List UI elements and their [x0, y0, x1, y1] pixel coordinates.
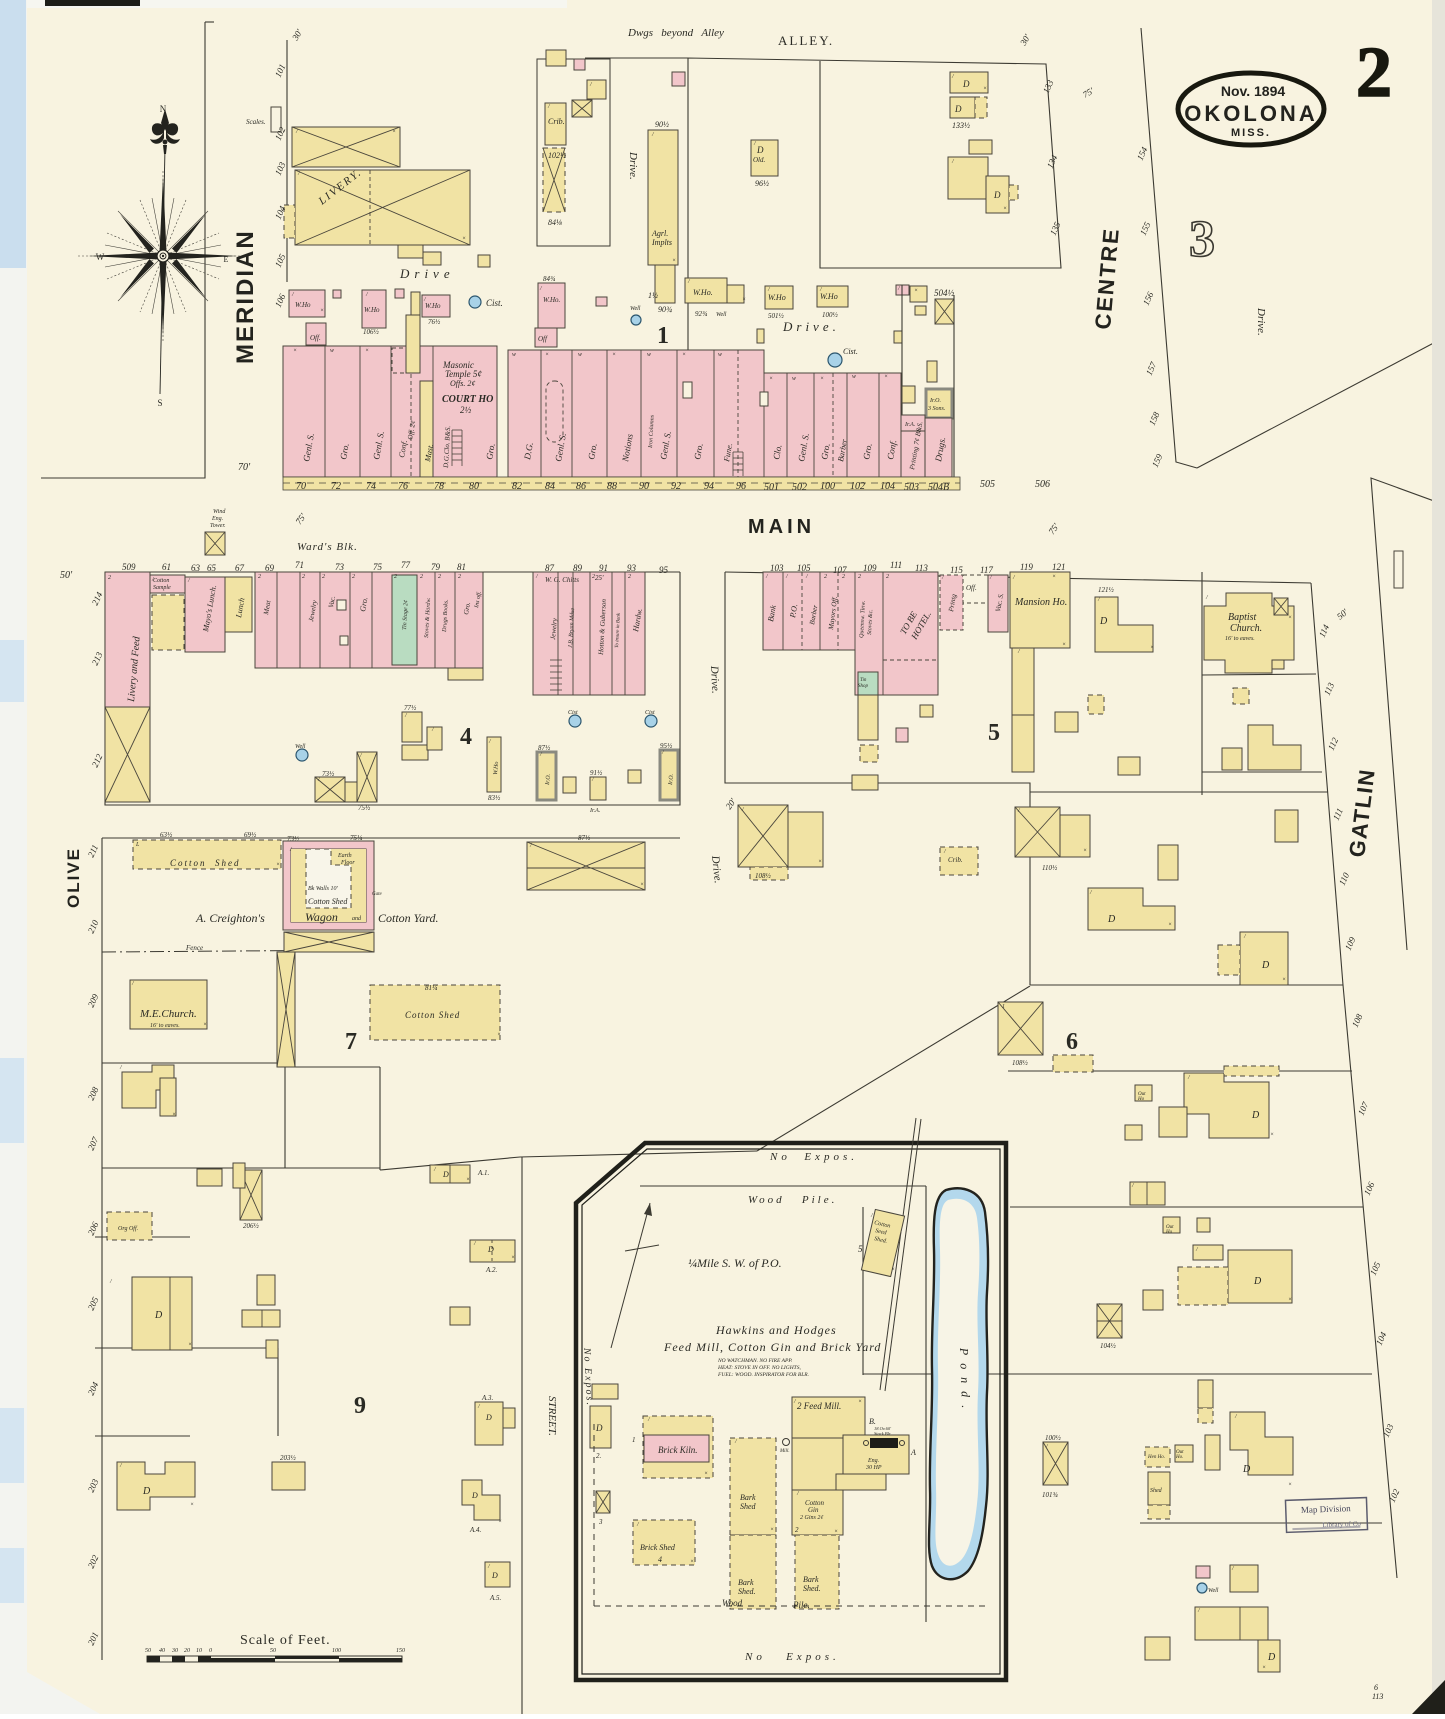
svg-text:A.2.: A.2.	[485, 1266, 498, 1274]
svg-text:75½: 75½	[358, 804, 371, 812]
svg-text:Cotton Shed: Cotton Shed	[405, 1010, 460, 1020]
svg-text:108½: 108½	[755, 872, 772, 880]
svg-text:×: ×	[293, 348, 297, 354]
svg-text:Cotton Shed: Cotton Shed	[308, 897, 348, 906]
svg-text:501: 501	[764, 482, 779, 493]
svg-text:115: 115	[950, 565, 963, 575]
svg-text:Bark: Bark	[803, 1575, 819, 1584]
svg-text:Offs. 2¢: Offs. 2¢	[450, 379, 475, 388]
svg-text:76½: 76½	[428, 318, 441, 326]
svg-text:A. Creighton's: A. Creighton's	[195, 911, 265, 925]
svg-text:×: ×	[769, 376, 773, 382]
svg-text:102: 102	[850, 481, 865, 492]
svg-text:84⅛: 84⅛	[548, 218, 562, 227]
svg-text:4: 4	[658, 1555, 662, 1564]
svg-text:2: 2	[886, 574, 889, 580]
svg-text:Temple 5¢: Temple 5¢	[445, 369, 482, 379]
svg-text:Crib.: Crib.	[948, 856, 963, 864]
svg-text:Well: Well	[630, 306, 641, 312]
svg-text:16' to eaves.: 16' to eaves.	[1225, 636, 1255, 642]
svg-text:w: w	[647, 352, 651, 358]
svg-text:D: D	[142, 1486, 151, 1497]
svg-text:502: 502	[792, 482, 807, 493]
svg-text:87½: 87½	[578, 834, 591, 842]
svg-text:73½: 73½	[287, 835, 300, 843]
svg-text:W.Ho: W.Ho	[295, 301, 311, 309]
svg-text:W.Ho.: W.Ho.	[693, 288, 713, 297]
svg-text:×: ×	[1083, 848, 1087, 854]
svg-text:×: ×	[1288, 1482, 1292, 1488]
svg-text:D: D	[962, 79, 970, 89]
svg-text:D: D	[491, 1571, 498, 1580]
svg-text:Ho: Ho	[1137, 1097, 1145, 1102]
svg-text:Ir.A.: Ir.A.	[589, 808, 600, 814]
svg-text:Off.: Off.	[966, 584, 977, 592]
svg-text:w: w	[718, 352, 722, 358]
svg-text:Map Division: Map Division	[1301, 1503, 1352, 1515]
svg-text:0: 0	[209, 1648, 212, 1654]
svg-text:121½: 121½	[1098, 586, 1115, 594]
svg-text:D: D	[1242, 1464, 1251, 1475]
svg-text:100½: 100½	[1045, 1434, 1062, 1442]
svg-text:Ho.: Ho.	[1175, 1455, 1183, 1460]
svg-text:Ir.O.: Ir.O.	[929, 398, 941, 404]
svg-text:74: 74	[366, 481, 376, 492]
svg-text:117: 117	[980, 565, 993, 575]
svg-text:W.Ho.: W.Ho.	[543, 296, 560, 304]
svg-text:Cist: Cist	[568, 710, 578, 716]
svg-text:×: ×	[511, 1255, 515, 1261]
svg-text:A.3.: A.3.	[481, 1394, 494, 1402]
svg-text:119: 119	[1020, 562, 1033, 572]
svg-text:and: and	[352, 916, 362, 922]
svg-text:W.Ho: W.Ho	[493, 761, 500, 775]
svg-text:2 Gins 2¢: 2 Gins 2¢	[800, 1515, 823, 1521]
svg-text:105: 105	[797, 563, 811, 573]
svg-text:63½: 63½	[160, 831, 173, 839]
svg-text:Earth: Earth	[337, 853, 352, 859]
svg-text:77: 77	[401, 560, 411, 570]
svg-text:83½: 83½	[488, 794, 501, 802]
svg-text:×: ×	[462, 236, 466, 242]
svg-text:×: ×	[498, 1519, 502, 1525]
svg-text:103: 103	[770, 563, 784, 573]
svg-text:×: ×	[834, 1529, 838, 1535]
svg-text:2: 2	[322, 574, 325, 580]
svg-text:×: ×	[1270, 1132, 1274, 1138]
svg-text:71: 71	[295, 560, 304, 570]
svg-text:×: ×	[1052, 574, 1056, 580]
svg-text:D: D	[485, 1413, 492, 1422]
svg-text:Brick Kiln.: Brick Kiln.	[658, 1445, 698, 1455]
svg-text:Drive.: Drive.	[782, 319, 840, 334]
svg-text:OKOLONA: OKOLONA	[1184, 101, 1317, 126]
svg-text:Shop: Shop	[858, 684, 869, 689]
svg-text:W.Ho: W.Ho	[820, 292, 838, 301]
svg-text:Bark: Bark	[738, 1578, 754, 1587]
svg-text:50: 50	[270, 1648, 276, 1654]
svg-text:20: 20	[184, 1648, 190, 1654]
svg-text:107: 107	[833, 565, 847, 575]
svg-text:6: 6	[1066, 1029, 1078, 1055]
svg-text:206½: 206½	[243, 1222, 260, 1230]
svg-text:Ir.O.: Ir.O.	[545, 774, 552, 786]
svg-text:w: w	[512, 352, 516, 358]
svg-text:×: ×	[682, 352, 686, 358]
svg-text:×: ×	[858, 1399, 862, 1405]
svg-text:Bk Walls 10': Bk Walls 10'	[308, 886, 338, 892]
svg-text:No Expos.: No Expos.	[769, 1151, 858, 1163]
svg-text:Well: Well	[716, 312, 727, 318]
svg-text:Well: Well	[1208, 1588, 1219, 1594]
svg-text:2: 2	[1356, 32, 1392, 112]
svg-text:50: 50	[145, 1648, 151, 1654]
svg-text:FUEL: WOOD. INSPIRATOR FOR BLR: FUEL: WOOD. INSPIRATOR FOR BLR.	[717, 1372, 809, 1378]
svg-text:75¼: 75¼	[350, 834, 363, 842]
svg-text:A.1.: A.1.	[477, 1169, 490, 1177]
svg-text:×: ×	[914, 288, 918, 294]
svg-text:MAIN: MAIN	[748, 516, 815, 538]
svg-text:4: 4	[460, 724, 472, 750]
svg-text:96: 96	[736, 481, 746, 492]
svg-text:73½: 73½	[322, 770, 335, 778]
svg-text:D: D	[1107, 914, 1116, 925]
svg-text:Off: Off	[538, 335, 548, 343]
svg-text:w: w	[330, 348, 334, 354]
svg-text:94: 94	[704, 481, 714, 492]
svg-text:D: D	[1253, 1276, 1262, 1287]
svg-text:63: 63	[191, 563, 201, 573]
svg-text:30 HP: 30 HP	[865, 1465, 882, 1471]
svg-text:113: 113	[1372, 1692, 1383, 1701]
svg-text:D: D	[993, 190, 1001, 200]
svg-text:STREET.: STREET.	[546, 1396, 558, 1436]
svg-text:Drive: Drive	[399, 266, 455, 281]
svg-text:2: 2	[824, 574, 827, 580]
svg-text:Cotton: Cotton	[153, 578, 169, 584]
svg-text:Pond.: Pond.	[957, 1347, 973, 1417]
svg-text:503: 503	[904, 482, 919, 493]
svg-text:10: 10	[196, 1648, 202, 1654]
svg-text:Scale of Feet.: Scale of Feet.	[240, 1633, 331, 1648]
svg-text:w: w	[792, 376, 796, 382]
svg-text:D: D	[1261, 960, 1270, 971]
svg-text:×: ×	[1003, 206, 1007, 212]
svg-text:Off.: Off.	[310, 334, 321, 342]
svg-text:×: ×	[884, 374, 888, 380]
svg-text:9: 9	[354, 1393, 366, 1419]
svg-text:×: ×	[672, 258, 676, 264]
svg-text:Eng.: Eng.	[211, 516, 223, 522]
svg-text:×: ×	[497, 1032, 501, 1038]
svg-text:2: 2	[302, 574, 305, 580]
svg-text:Cist.: Cist.	[486, 298, 503, 308]
svg-text:90: 90	[639, 481, 649, 492]
svg-text:×: ×	[891, 1267, 895, 1273]
svg-text:Wood: Wood	[722, 1598, 743, 1608]
svg-text:×: ×	[690, 1559, 694, 1565]
svg-text:OLIVE: OLIVE	[64, 847, 83, 908]
svg-text:86: 86	[576, 481, 586, 492]
svg-text:84¾: 84¾	[543, 275, 556, 283]
svg-text:81: 81	[457, 562, 466, 572]
svg-text:Bark: Bark	[740, 1493, 756, 1502]
svg-text:D: D	[954, 104, 962, 114]
svg-text:Hawkins and Hodges: Hawkins and Hodges	[715, 1323, 837, 1337]
svg-text:COURT HO: COURT HO	[442, 394, 493, 405]
svg-text:73: 73	[335, 562, 345, 572]
svg-text:3: 3	[1189, 211, 1215, 268]
svg-text:1: 1	[1002, 1004, 1005, 1010]
svg-text:D: D	[487, 1245, 494, 1254]
svg-text:72: 72	[331, 481, 341, 492]
svg-text:×: ×	[612, 352, 616, 358]
svg-text:Brick Shed: Brick Shed	[640, 1543, 676, 1552]
svg-text:2: 2	[858, 574, 861, 580]
svg-text:95: 95	[659, 565, 669, 575]
svg-text:Wood Pile.: Wood Pile.	[748, 1194, 837, 1206]
svg-text:Wind: Wind	[213, 509, 226, 515]
svg-text:65: 65	[207, 563, 217, 573]
svg-text:Baptist: Baptist	[1228, 612, 1257, 623]
svg-text:×: ×	[820, 376, 824, 382]
svg-text:90½: 90½	[655, 120, 669, 129]
svg-text:7: 7	[345, 1029, 357, 1055]
svg-text:504B: 504B	[928, 482, 949, 493]
svg-text:2: 2	[394, 574, 397, 580]
svg-text:92¾: 92¾	[695, 310, 708, 318]
svg-text:506: 506	[1035, 479, 1050, 490]
svg-text:Ho: Ho	[1165, 1230, 1173, 1235]
svg-text:Ward's Blk.: Ward's Blk.	[297, 541, 358, 553]
svg-text:2 Feed Mill.: 2 Feed Mill.	[797, 1401, 841, 1411]
svg-text:504½: 504½	[934, 288, 955, 298]
svg-text:91½: 91½	[590, 769, 603, 777]
svg-text:W. G. Chitts: W. G. Chitts	[545, 576, 579, 584]
svg-text:No Expos.: No Expos.	[744, 1651, 840, 1663]
svg-text:w: w	[852, 374, 856, 380]
svg-text:w: w	[578, 352, 582, 358]
svg-text:Drive.: Drive.	[708, 665, 721, 694]
svg-text:Agrl.: Agrl.	[651, 229, 668, 238]
svg-text:×: ×	[1262, 1665, 1266, 1671]
svg-text:Cist.: Cist.	[843, 347, 858, 356]
svg-text:×: ×	[188, 1342, 192, 1348]
svg-text:Sample: Sample	[153, 585, 171, 591]
svg-text:Hen Ho.: Hen Ho.	[1147, 1455, 1165, 1460]
svg-text:81¼: 81¼	[425, 984, 438, 992]
svg-text:Drive.: Drive.	[627, 151, 639, 180]
svg-text:×: ×	[203, 1022, 207, 1028]
svg-text:90¾: 90¾	[658, 305, 672, 314]
svg-text:Drive.: Drive.	[1255, 307, 1267, 336]
svg-text:111: 111	[890, 560, 902, 570]
svg-text:Cotton Yard.: Cotton Yard.	[378, 911, 438, 925]
svg-text:100½: 100½	[822, 311, 839, 319]
svg-text:133½: 133½	[952, 121, 970, 130]
svg-text:203½: 203½	[280, 1454, 297, 1462]
svg-text:505: 505	[980, 479, 995, 490]
svg-text:Church.: Church.	[1230, 623, 1262, 634]
svg-text:×: ×	[704, 1471, 708, 1477]
svg-text:121: 121	[1052, 562, 1066, 572]
svg-text:×: ×	[742, 297, 746, 303]
svg-text:Shed: Shed	[740, 1502, 757, 1511]
svg-text:W.Ho: W.Ho	[768, 293, 786, 302]
svg-text:Implts: Implts	[651, 238, 672, 247]
svg-text:101¾: 101¾	[1042, 1491, 1059, 1499]
svg-text:2: 2	[438, 574, 441, 580]
svg-text:16' to eaves.: 16' to eaves.	[150, 1023, 180, 1029]
svg-text:2: 2	[628, 574, 631, 580]
svg-text:×: ×	[365, 348, 369, 354]
svg-text:1: 1	[632, 1436, 636, 1444]
svg-text:70': 70'	[238, 462, 251, 473]
svg-text:2: 2	[258, 574, 261, 580]
svg-text:509: 509	[122, 562, 136, 572]
svg-text:30: 30	[171, 1648, 178, 1654]
svg-text:D: D	[1251, 1110, 1260, 1121]
svg-text:78: 78	[434, 481, 444, 492]
svg-text:W: W	[96, 252, 105, 262]
svg-text:Cotton Shed: Cotton Shed	[170, 858, 241, 868]
svg-text:MERIDIAN: MERIDIAN	[232, 229, 259, 364]
svg-text:3 Sons.: 3 Sons.	[927, 406, 945, 412]
svg-text:B.: B.	[869, 1417, 876, 1426]
svg-text:2½: 2½	[460, 405, 472, 415]
svg-text:×: ×	[983, 86, 987, 92]
svg-text:2: 2	[352, 574, 355, 580]
svg-text:×: ×	[640, 882, 644, 888]
svg-text:67: 67	[235, 563, 245, 573]
svg-text:Wagon: Wagon	[305, 910, 338, 924]
svg-text:Nov. 1894: Nov. 1894	[1221, 83, 1286, 99]
svg-text:91: 91	[599, 563, 608, 573]
svg-text:2: 2	[108, 575, 111, 581]
svg-text:A.5.: A.5.	[489, 1594, 502, 1602]
svg-text:76: 76	[398, 481, 408, 492]
svg-text:Mansion Ho.: Mansion Ho.	[1014, 597, 1067, 608]
svg-text:Gin: Gin	[808, 1506, 819, 1514]
svg-text:79: 79	[431, 562, 441, 572]
svg-text:3: 3	[598, 1518, 603, 1526]
svg-text:¼Mile S. W. of P.O.: ¼Mile S. W. of P.O.	[688, 1256, 782, 1270]
svg-text:89: 89	[573, 563, 583, 573]
svg-text:×: ×	[545, 352, 549, 358]
svg-text:D: D	[595, 1423, 603, 1433]
svg-text:D: D	[154, 1310, 163, 1321]
svg-text:×: ×	[1062, 642, 1066, 648]
svg-text:1½: 1½	[648, 291, 658, 300]
svg-text:87: 87	[545, 563, 555, 573]
svg-text:1: 1	[657, 323, 669, 349]
svg-text:102½: 102½	[548, 151, 566, 160]
svg-text:W.Ho: W.Ho	[364, 306, 380, 314]
svg-text:×: ×	[320, 308, 324, 314]
svg-text:Crib.: Crib.	[548, 117, 565, 126]
svg-text:×: ×	[1168, 922, 1172, 928]
svg-text:×: ×	[770, 1527, 774, 1533]
svg-text:M.E.Church.: M.E.Church.	[139, 1008, 197, 1020]
svg-text:D: D	[756, 145, 764, 155]
svg-text:Shed.: Shed.	[738, 1587, 756, 1596]
svg-text:25': 25'	[595, 574, 604, 582]
svg-text:D: D	[442, 1170, 449, 1179]
svg-text:106½: 106½	[363, 328, 380, 336]
svg-text:ALLEY.: ALLEY.	[778, 33, 834, 48]
svg-text:E: E	[224, 255, 229, 264]
svg-text:×: ×	[1288, 615, 1292, 621]
svg-text:×: ×	[1282, 977, 1286, 983]
svg-text:×: ×	[392, 129, 396, 135]
svg-text:×: ×	[466, 1177, 470, 1183]
svg-text:N: N	[160, 104, 167, 114]
svg-text:100: 100	[332, 1648, 341, 1654]
svg-text:501½: 501½	[768, 312, 785, 320]
svg-text:5: 5	[858, 1244, 863, 1254]
svg-text:MISS.: MISS.	[1231, 127, 1271, 139]
svg-text:Cist: Cist	[645, 710, 655, 716]
svg-text:6: 6	[1374, 1683, 1378, 1692]
svg-text:92: 92	[671, 481, 681, 492]
svg-text:77½: 77½	[404, 704, 417, 712]
svg-text:A: A	[910, 1448, 916, 1457]
svg-text:88: 88	[607, 481, 617, 492]
svg-text:109: 109	[863, 563, 877, 573]
svg-text:75: 75	[373, 562, 383, 572]
svg-text:×: ×	[1288, 1297, 1292, 1303]
svg-text:87½: 87½	[538, 744, 551, 752]
svg-text:D: D	[1267, 1652, 1276, 1663]
svg-text:2.: 2.	[596, 1452, 602, 1460]
svg-text:L: L	[135, 842, 140, 848]
svg-text:Shed.: Shed.	[803, 1584, 821, 1593]
svg-text:×: ×	[1150, 645, 1154, 651]
svg-text:69½: 69½	[244, 831, 257, 839]
svg-text:Org Off.: Org Off.	[118, 1225, 138, 1232]
svg-text:×: ×	[276, 862, 280, 868]
svg-text:×: ×	[190, 1502, 194, 1508]
svg-text:95½: 95½	[660, 742, 673, 750]
svg-text:W.Ho: W.Ho	[425, 302, 441, 310]
svg-text:61: 61	[162, 562, 171, 572]
svg-text:Ir.O.: Ir.O.	[668, 774, 675, 786]
svg-text:Feed Mill, Cotton Gin and Bric: Feed Mill, Cotton Gin and Brick Yard	[663, 1340, 881, 1354]
svg-text:5: 5	[988, 720, 1000, 746]
svg-text:Fence: Fence	[185, 944, 203, 952]
svg-text:Old.: Old.	[753, 156, 766, 164]
svg-text:96½: 96½	[755, 179, 769, 188]
svg-text:100: 100	[820, 481, 835, 492]
svg-text:70: 70	[296, 481, 306, 492]
svg-text:Well: Well	[295, 744, 306, 750]
svg-text:Stack Blr.: Stack Blr.	[874, 1431, 891, 1436]
svg-text:Scales.: Scales.	[246, 118, 266, 126]
svg-text:150: 150	[396, 1648, 405, 1654]
svg-text:D: D	[471, 1491, 478, 1500]
svg-text:S: S	[157, 398, 162, 408]
svg-text:Eng.: Eng.	[867, 1458, 879, 1464]
svg-text:2: 2	[420, 574, 423, 580]
svg-text:×: ×	[172, 1112, 176, 1118]
svg-text:Tin: Tin	[860, 678, 867, 683]
svg-text:Tower.: Tower.	[210, 523, 226, 529]
svg-text:2: 2	[458, 574, 461, 580]
svg-text:Ir.A.: Ir.A.	[904, 422, 915, 428]
svg-text:110½: 110½	[1042, 864, 1058, 872]
svg-text:82: 82	[512, 481, 522, 492]
svg-text:113: 113	[915, 563, 928, 573]
